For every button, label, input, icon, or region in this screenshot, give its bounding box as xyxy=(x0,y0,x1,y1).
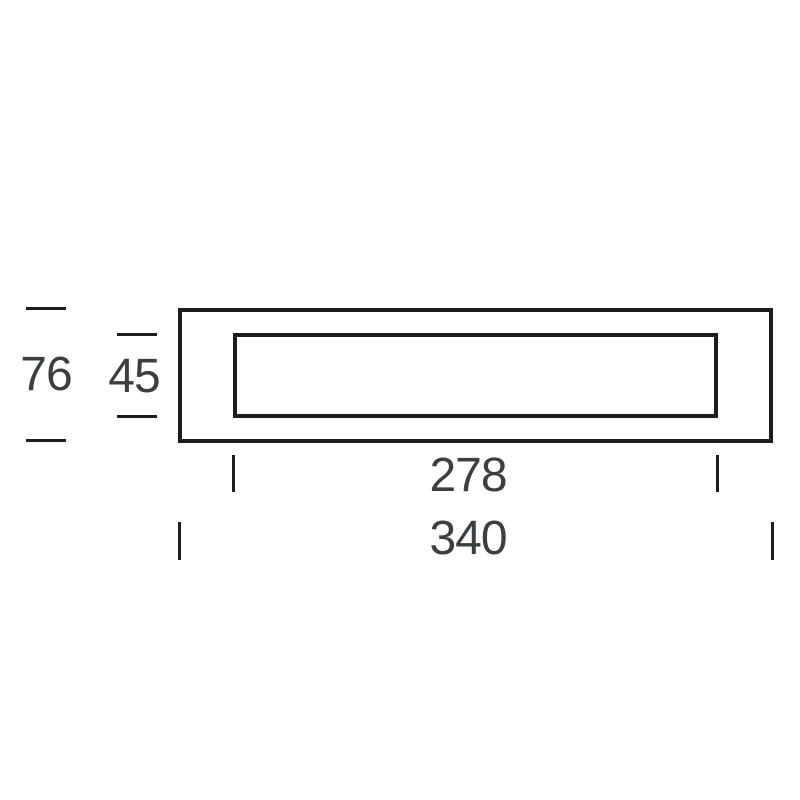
tick-outer-width-left xyxy=(178,522,181,560)
tick-outer-height-top xyxy=(26,307,66,310)
dimension-label-outer-height: 76 xyxy=(20,351,71,399)
technical-drawing: 76 45 278 340 xyxy=(0,0,800,800)
dimension-label-inner-height: 45 xyxy=(108,353,159,401)
tick-inner-width-right xyxy=(716,455,719,492)
tick-outer-width-right xyxy=(771,522,774,560)
tick-inner-width-left xyxy=(232,455,235,492)
dimension-label-inner-width: 278 xyxy=(429,452,506,500)
tick-inner-height-bottom xyxy=(117,415,157,418)
dimension-label-outer-width: 340 xyxy=(429,515,506,563)
tick-outer-height-bottom xyxy=(26,439,66,442)
tick-inner-height-top xyxy=(117,333,157,336)
inner-rectangle xyxy=(233,333,718,418)
